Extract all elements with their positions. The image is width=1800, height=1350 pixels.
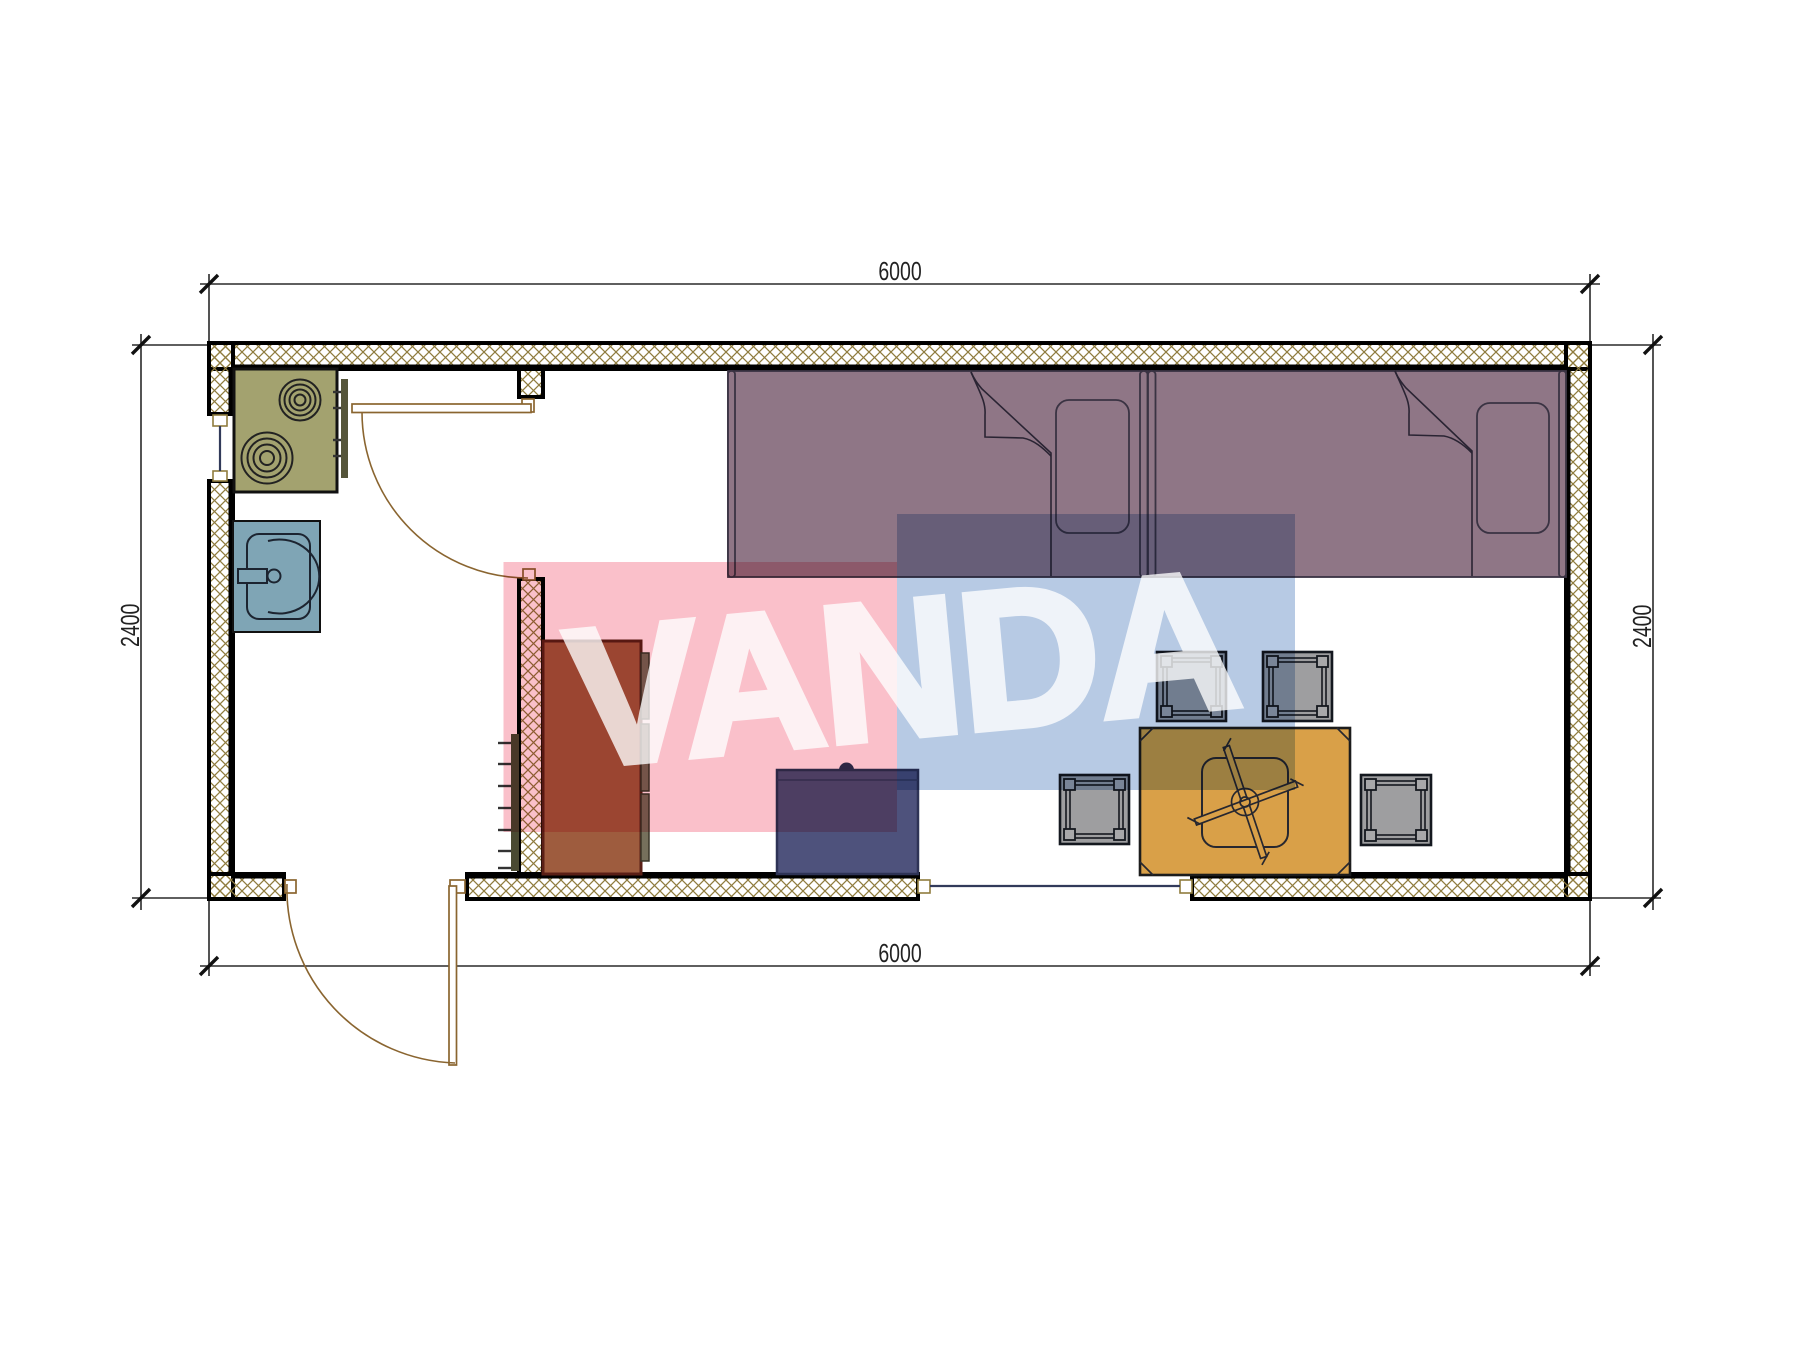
svg-text:6000: 6000 [878, 938, 921, 967]
svg-text:2400: 2400 [115, 604, 144, 647]
svg-text:6000: 6000 [878, 256, 921, 285]
svg-text:2400: 2400 [1627, 605, 1656, 648]
